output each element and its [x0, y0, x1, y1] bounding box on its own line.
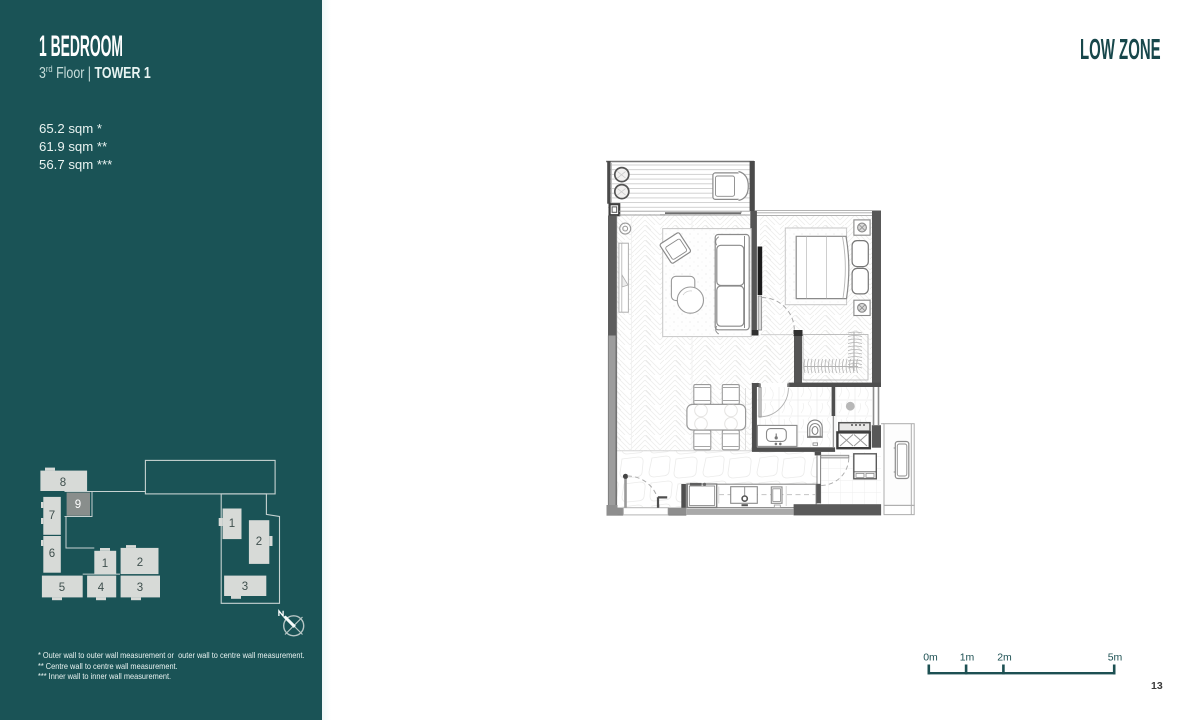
svg-text:0m: 0m: [923, 652, 938, 664]
svg-text:7: 7: [49, 510, 55, 522]
svg-text:5m: 5m: [1108, 652, 1123, 664]
svg-text:3: 3: [242, 581, 248, 593]
svg-text:9: 9: [75, 499, 81, 511]
svg-text:3: 3: [137, 582, 143, 594]
svg-text:2m: 2m: [997, 652, 1012, 664]
svg-text:4: 4: [98, 582, 105, 594]
svg-text:8: 8: [60, 477, 66, 489]
svg-text:1m: 1m: [960, 652, 975, 664]
svg-text:1: 1: [229, 518, 235, 530]
svg-text:2: 2: [256, 536, 262, 548]
svg-text:2: 2: [137, 557, 143, 569]
svg-text:1: 1: [102, 558, 108, 570]
svg-text:6: 6: [49, 548, 55, 560]
svg-text:5: 5: [59, 582, 65, 594]
